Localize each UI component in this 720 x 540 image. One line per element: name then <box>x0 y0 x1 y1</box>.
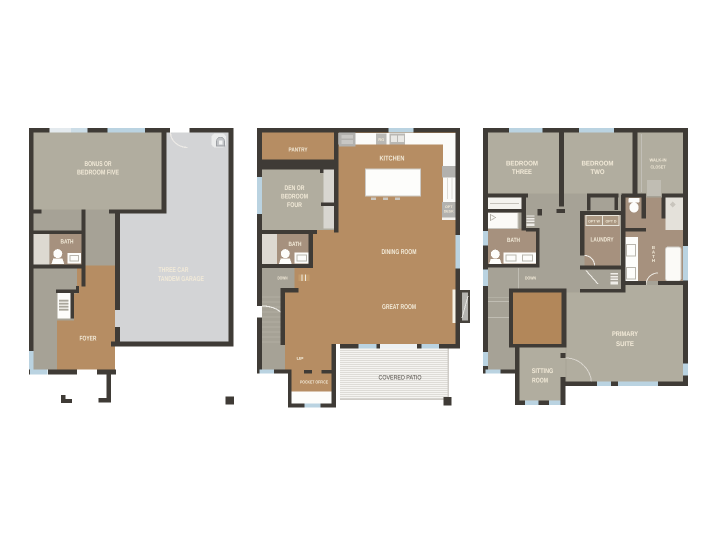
svg-text:FOUR: FOUR <box>287 202 302 209</box>
svg-text:BEDROOM: BEDROOM <box>582 161 614 168</box>
svg-text:DOWN: DOWN <box>525 276 536 281</box>
svg-text:BEDROOM: BEDROOM <box>281 194 308 201</box>
svg-text:OPT: OPT <box>445 205 453 209</box>
svg-text:DINING ROOM: DINING ROOM <box>382 249 417 256</box>
svg-text:ROOM: ROOM <box>532 378 548 385</box>
svg-text:BATH: BATH <box>61 239 74 246</box>
svg-text:SUITE: SUITE <box>616 341 634 348</box>
svg-text:DOWN: DOWN <box>278 276 288 281</box>
svg-text:UP: UP <box>297 356 304 361</box>
svg-text:SITTING: SITTING <box>532 368 554 375</box>
svg-text:RG: RG <box>378 137 384 142</box>
svg-text:COVERED PATIO: COVERED PATIO <box>379 375 422 382</box>
svg-text:WALK-IN: WALK-IN <box>650 158 667 163</box>
svg-text:LAUNDRY: LAUNDRY <box>591 237 614 244</box>
svg-text:BATH: BATH <box>507 237 520 244</box>
svg-text:BONUS OR: BONUS OR <box>85 161 112 168</box>
svg-text:OPT W: OPT W <box>588 220 600 224</box>
svg-text:BATH: BATH <box>289 241 302 248</box>
svg-text:DEN OR: DEN OR <box>285 185 305 192</box>
svg-text:DESK: DESK <box>444 210 454 214</box>
svg-text:CLOSET: CLOSET <box>651 165 666 170</box>
svg-text:GREAT ROOM: GREAT ROOM <box>382 304 416 311</box>
svg-text:THREE CAR: THREE CAR <box>159 267 189 274</box>
svg-text:FOYER: FOYER <box>80 336 97 343</box>
svg-text:BEDROOM: BEDROOM <box>506 161 538 168</box>
svg-text:KITCHEN: KITCHEN <box>380 156 405 163</box>
svg-text:PRIMARY: PRIMARY <box>612 331 638 338</box>
svg-text:TWO: TWO <box>591 169 605 176</box>
svg-text:POCKET OFFICE: POCKET OFFICE <box>300 380 328 385</box>
svg-text:THREE: THREE <box>512 169 532 176</box>
svg-text:OPT D: OPT D <box>606 220 617 224</box>
svg-text:TANDEM GARAGE: TANDEM GARAGE <box>158 276 204 283</box>
svg-text:BEDROOM FIVE: BEDROOM FIVE <box>77 170 119 177</box>
svg-text:H: H <box>652 258 655 263</box>
svg-text:PANTRY: PANTRY <box>289 148 308 154</box>
